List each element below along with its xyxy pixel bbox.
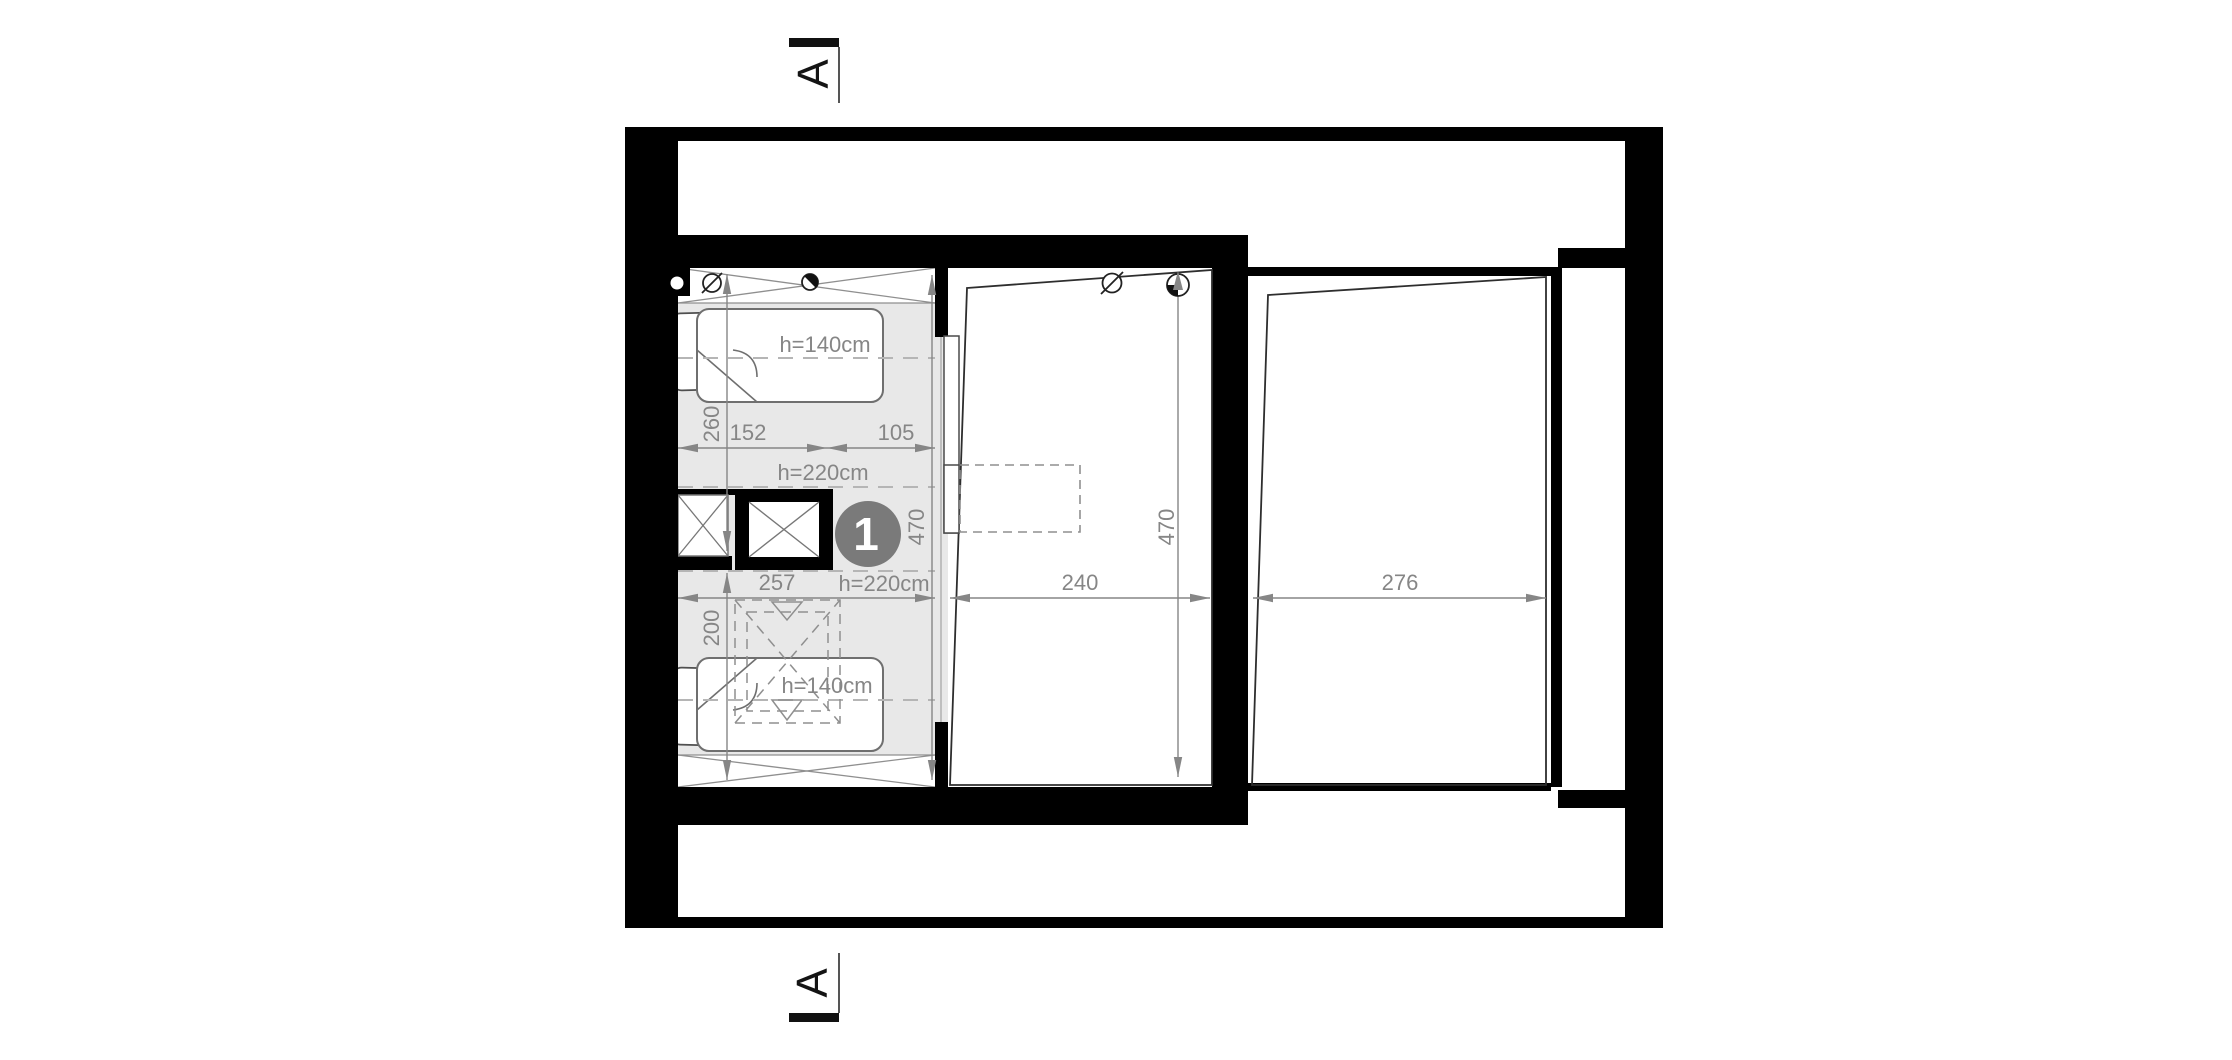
outer-wall-left	[625, 127, 678, 928]
dim-470-middle: 470	[1154, 509, 1179, 546]
badge-number: 1	[853, 508, 879, 560]
interior-wall-top-left	[678, 235, 1248, 268]
attic-floor-plan-drawing: h=140cm h=220cm h=220cm h=140cm 152 105 …	[0, 0, 2232, 1060]
door-panel-section	[944, 465, 959, 533]
label-h220-bottom: h=220cm	[838, 571, 929, 596]
partition-wall-bottom	[935, 722, 948, 787]
dim-276: 276	[1382, 570, 1419, 595]
section-marker-top: A	[789, 38, 839, 103]
hatch-strip-bottom	[678, 755, 935, 787]
section-label-bottom: A	[788, 968, 837, 998]
right-room-outline	[1252, 277, 1546, 785]
partition-wall-top	[935, 268, 948, 337]
dim-240: 240	[1062, 570, 1099, 595]
dim-105: 105	[878, 420, 915, 445]
bed-outline	[697, 658, 883, 751]
column-point-icon	[671, 277, 684, 290]
room-number-badge: 1	[835, 501, 901, 567]
label-h220-top: h=220cm	[777, 460, 868, 485]
label-h140-top: h=140cm	[779, 332, 870, 357]
section-marker-bottom: A	[788, 953, 839, 1022]
divider-wall-right	[1551, 267, 1562, 787]
dim-152: 152	[730, 420, 767, 445]
knee-wall-strip	[678, 556, 732, 570]
bed-bottom	[670, 658, 883, 751]
section-bar-icon	[789, 38, 839, 47]
section-bar-icon	[789, 1013, 839, 1022]
outer-wall-top	[625, 127, 1663, 141]
dim-257: 257	[759, 570, 796, 595]
wall-connector-top-right	[1558, 248, 1625, 268]
outer-wall-bottom	[625, 917, 1663, 928]
interior-wall-top-right	[1248, 267, 1553, 276]
outer-wall-right	[1625, 127, 1663, 928]
chimney-shaft	[735, 489, 833, 570]
floor-plan-canvas: h=140cm h=220cm h=220cm h=140cm 152 105 …	[0, 0, 2232, 1060]
dim-470-left: 470	[904, 509, 929, 546]
interior-wall-middle-right	[1212, 235, 1248, 793]
dim-260: 260	[699, 406, 724, 443]
label-h140-bottom: h=140cm	[781, 673, 872, 698]
section-label-top: A	[789, 59, 838, 89]
dashed-furniture-box	[960, 465, 1080, 532]
dim-200: 200	[699, 610, 724, 647]
wall-connector-bottom-right	[1558, 790, 1625, 808]
interior-wall-bottom-left	[678, 787, 1248, 825]
